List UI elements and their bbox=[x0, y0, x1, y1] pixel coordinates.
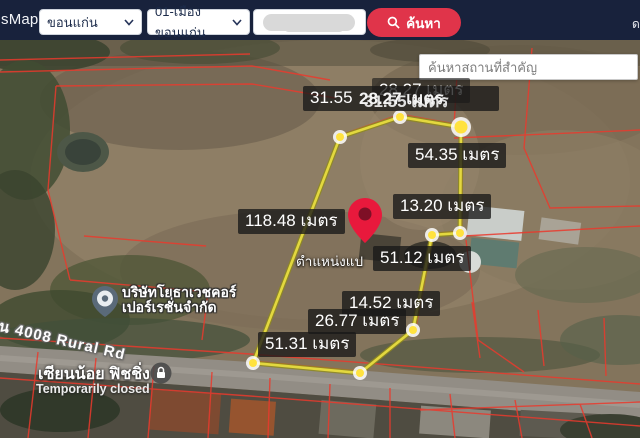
business-poi-icon[interactable] bbox=[92, 286, 118, 317]
chevron-down-icon bbox=[232, 17, 242, 27]
search-button-label: ค้นหา bbox=[406, 12, 441, 34]
landsmaps-app: { "topbar": { "brand": "sMaps", "provinc… bbox=[0, 0, 640, 438]
search-icon bbox=[387, 16, 400, 29]
topbar: sMaps ขอนแก่น 01-เมืองขอนแก่น ค้นหา ด bbox=[0, 0, 640, 40]
province-select-value: ขอนแก่น bbox=[47, 12, 98, 33]
parcel-number-input[interactable] bbox=[253, 9, 366, 35]
place-search-box bbox=[419, 54, 638, 80]
redaction-blob bbox=[284, 23, 344, 32]
satellite-map[interactable] bbox=[0, 40, 640, 438]
location-pin-icon[interactable] bbox=[348, 198, 382, 243]
place-search-input[interactable] bbox=[420, 55, 637, 79]
chevron-down-icon bbox=[124, 17, 134, 27]
district-select[interactable]: 01-เมืองขอนแก่น bbox=[147, 9, 250, 35]
district-select-value: 01-เมืองขอนแก่น bbox=[155, 1, 228, 43]
search-button[interactable]: ค้นหา bbox=[367, 8, 461, 37]
province-select[interactable]: ขอนแก่น bbox=[39, 9, 142, 35]
clipped-edge-text: ด bbox=[632, 15, 640, 34]
